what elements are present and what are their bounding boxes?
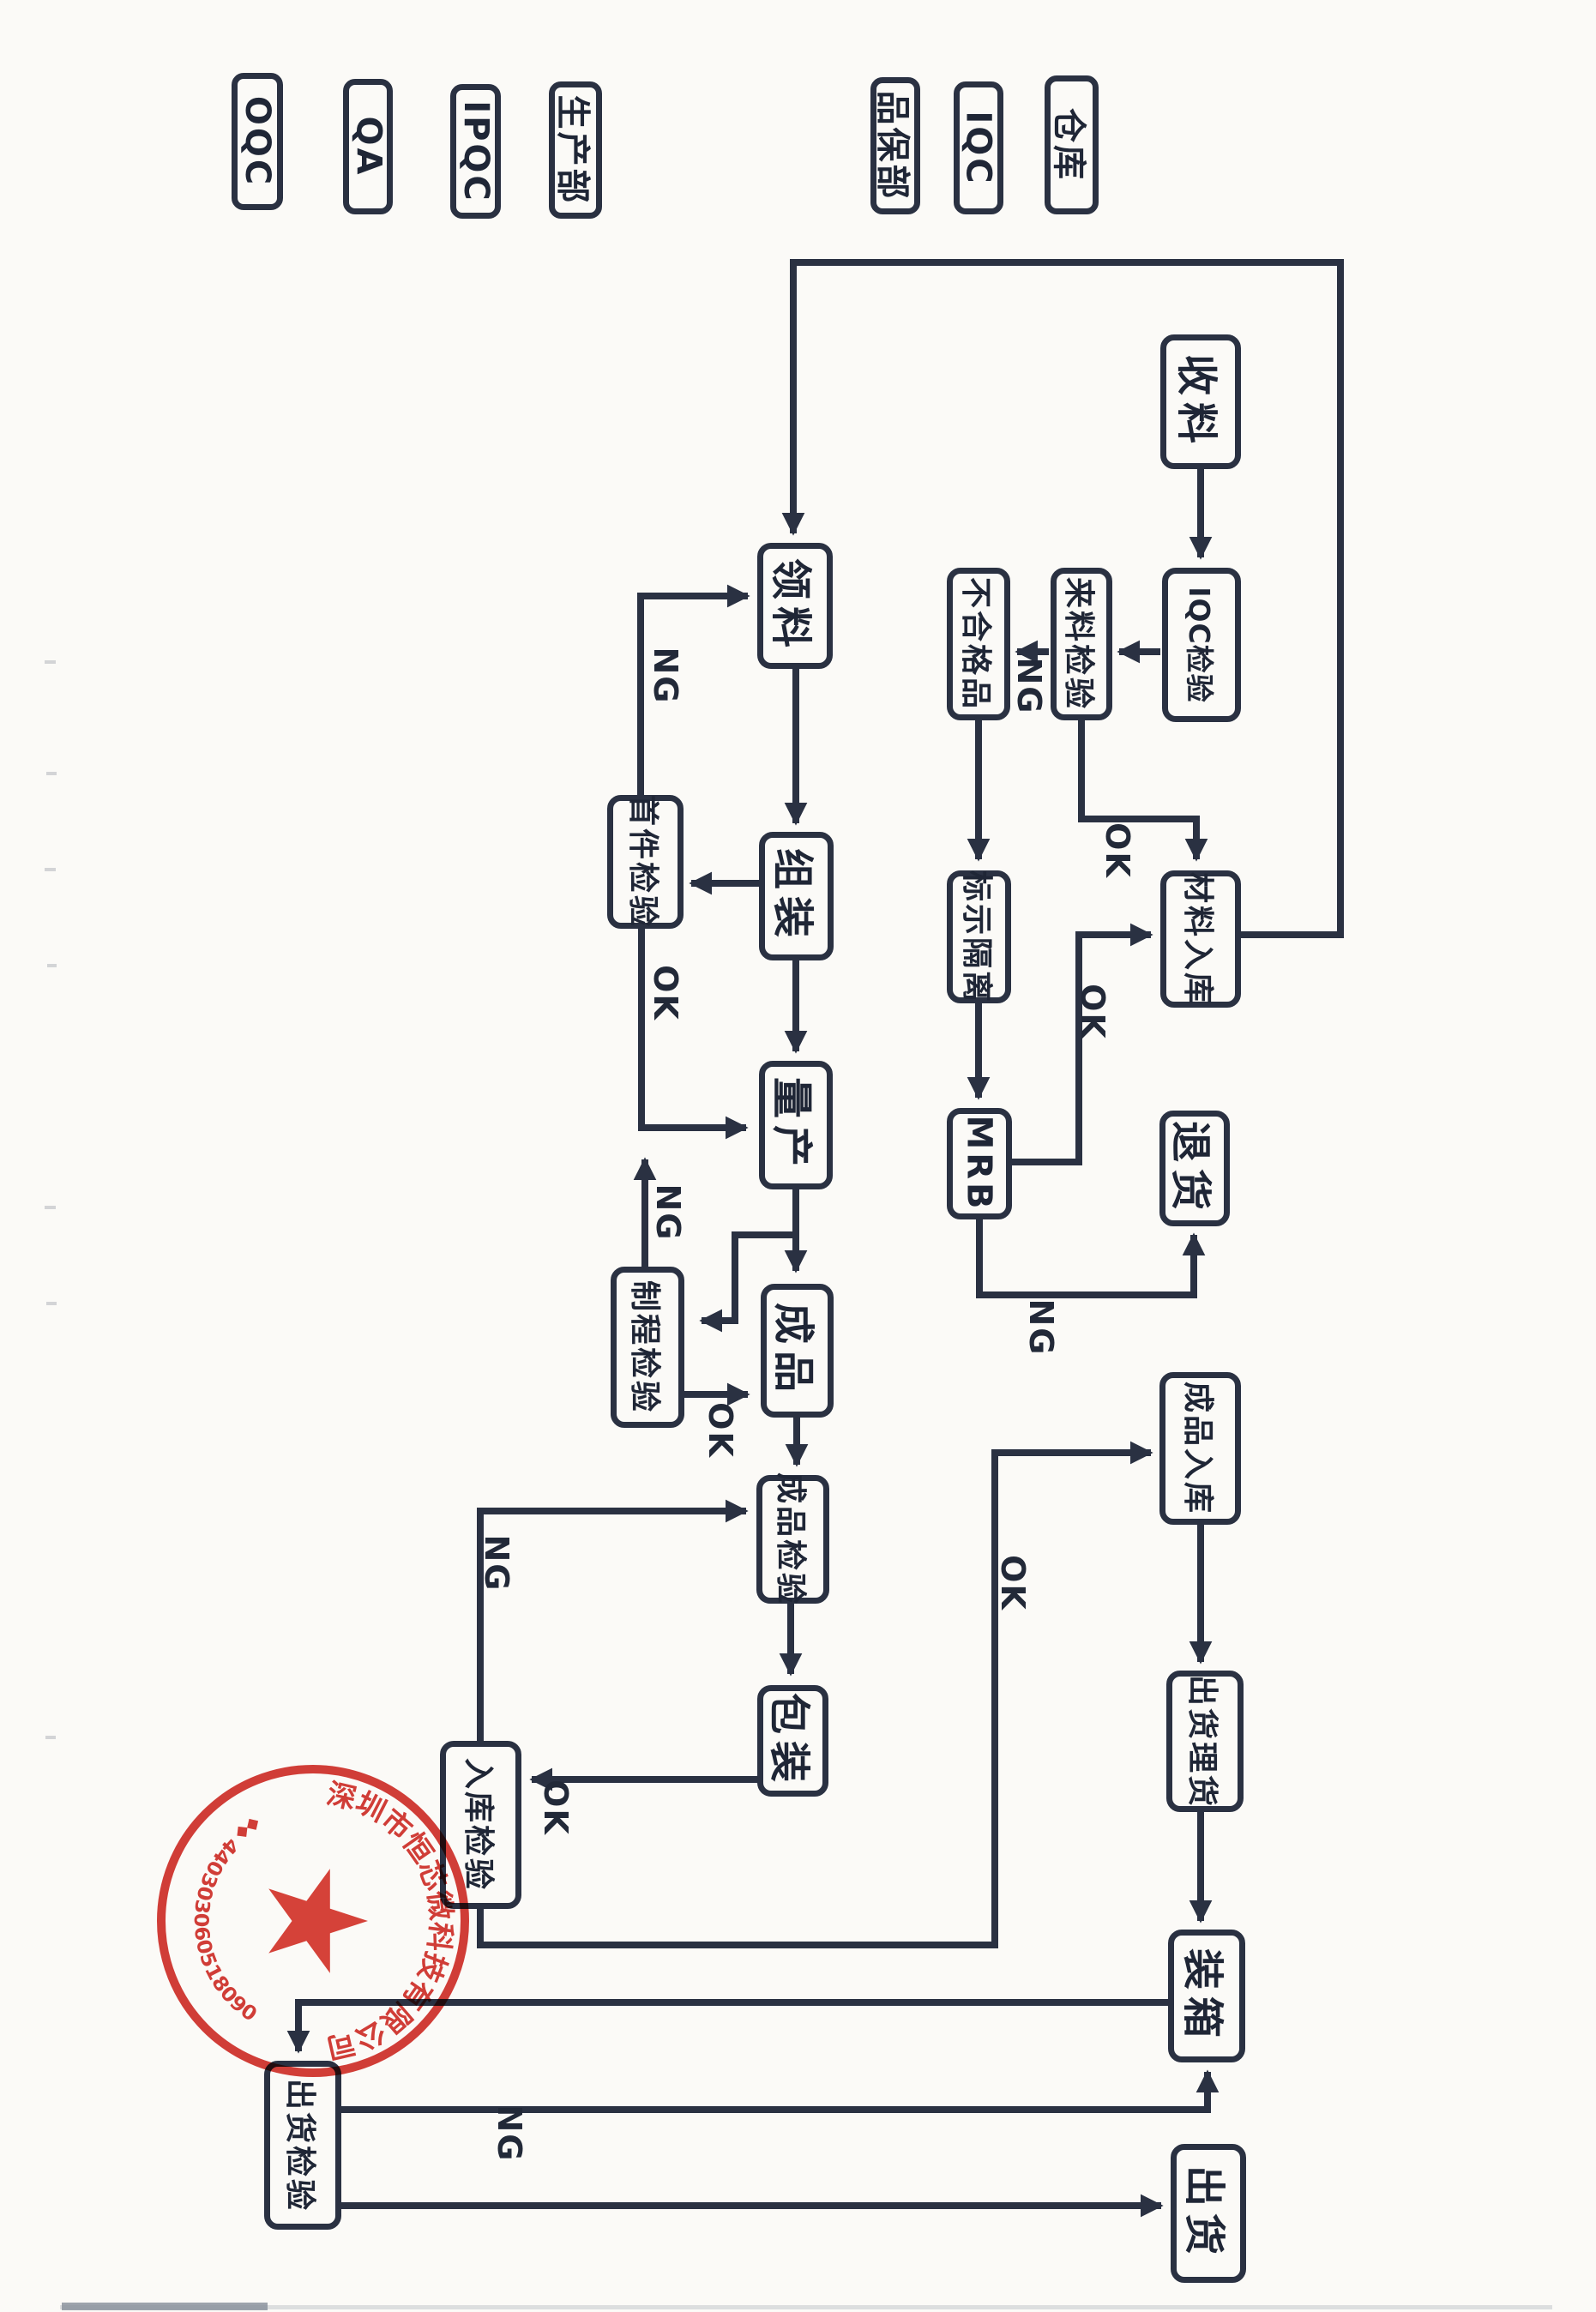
- edge-label-first-article-ok: OK: [647, 965, 684, 1021]
- flow-node-finished-product-label: 成品: [768, 1303, 828, 1399]
- flow-node-assembly: 组装: [759, 832, 834, 960]
- lane-header-iqc: IQC: [954, 81, 1003, 214]
- svg-text:◆◆: ◆◆: [232, 1814, 265, 1845]
- lane-header-ipqc: IPQC: [450, 84, 501, 219]
- flow-node-nonconforming-label: 不合格品: [956, 577, 1001, 711]
- edge-label-incoming-ng: NG: [1010, 658, 1048, 715]
- lane-header-quality: 品保部: [870, 77, 920, 214]
- flow-node-shipping-inspection: 出货检验: [264, 2061, 341, 2230]
- flow-node-first-article-inspection: 首件检验: [607, 795, 684, 929]
- lane-header-quality-label: 品保部: [870, 91, 920, 202]
- flow-node-iqc-inspection: IQC检验: [1162, 568, 1241, 722]
- edge-label-process-ng: NG: [649, 1184, 687, 1242]
- flow-node-storage-inspection-label: 入库检验: [459, 1758, 503, 1892]
- flow-node-return-goods: 退货: [1159, 1111, 1230, 1226]
- lane-header-oqc-label: OQC: [238, 96, 277, 187]
- connector-boxing-to-shipping-inspection: [298, 2002, 1168, 2051]
- star-icon: [268, 1869, 368, 1973]
- flow-node-shipping-label: 出货: [1178, 2165, 1238, 2261]
- lane-header-qa-label: QA: [348, 117, 388, 178]
- flow-node-finished-inspection-label: 成品检验: [771, 1472, 816, 1606]
- lane-header-iqc-label: IQC: [959, 111, 998, 185]
- lane-header-qa: QA: [343, 79, 393, 214]
- flow-node-pick-material: 领料: [757, 543, 833, 669]
- scan-artifact: [45, 1206, 56, 1209]
- flow-node-shipping-inspection-label: 出货检验: [280, 2078, 325, 2212]
- scan-artifact: [45, 868, 56, 871]
- stamp-ring: [161, 1769, 465, 2073]
- flow-node-shipping-prep-label: 出货理货: [1183, 1674, 1227, 1808]
- flow-node-finished-inspection: 成品检验: [756, 1475, 829, 1604]
- svg-text:深圳市恒芯微科技有限公司: 深圳市恒芯微科技有限公司: [323, 1777, 458, 2066]
- connector-first-article-ok-to-mass-production: [641, 929, 746, 1128]
- flow-node-storage-inspection: 入库检验: [440, 1741, 521, 1909]
- edge-label-shipping-inspection-ng: NG: [491, 2105, 528, 2163]
- scan-artifact: [46, 772, 57, 775]
- flow-node-mass-production: 量产: [759, 1061, 833, 1189]
- scan-edge-strip-dark: [62, 2303, 268, 2310]
- lane-header-warehouse: 仓库: [1045, 75, 1099, 214]
- lane-header-oqc: OQC: [232, 73, 283, 210]
- stamp-serial-number: 440303060518090: [190, 1833, 261, 2026]
- flow-node-mark-quarantine: 标示隔离: [947, 870, 1011, 1003]
- flow-node-mrb-label: MRB: [960, 1115, 999, 1212]
- flow-node-incoming-inspection-label: 来料检验: [1059, 577, 1104, 711]
- flow-node-material-storage-label: 材料入库: [1178, 872, 1223, 1006]
- flow-node-assembly-label: 组装: [767, 848, 827, 944]
- flow-node-boxing: 装箱: [1168, 1930, 1245, 2062]
- lane-header-ipqc-label: IPQC: [456, 100, 496, 203]
- flow-node-mass-production-label: 量产: [766, 1077, 826, 1173]
- lane-header-warehouse-label: 仓库: [1047, 108, 1097, 182]
- flow-node-nonconforming: 不合格品: [947, 568, 1010, 720]
- edge-label-first-article-ng: NG: [647, 647, 684, 705]
- connector-shipping-ng-to-boxing: [341, 2072, 1208, 2110]
- edge-label-incoming-ok: OK: [1099, 822, 1136, 879]
- flow-node-mark-quarantine-label: 标示隔离: [957, 870, 1002, 1003]
- scan-artifact: [46, 1302, 57, 1305]
- edge-label-mrb-ng: NG: [1022, 1299, 1060, 1357]
- flow-node-iqc-inspection-label: IQC检验: [1181, 587, 1222, 703]
- stamp-separator: ◆◆: [232, 1814, 265, 1845]
- connector-mrb-ok-to-material-storage: [1012, 935, 1151, 1162]
- flow-node-first-article-inspection-label: 首件检验: [623, 795, 668, 929]
- flow-node-finished-storage: 成品入库: [1159, 1372, 1241, 1525]
- flow-node-packing-label: 包装: [763, 1693, 823, 1789]
- edge-label-packing-ok: OK: [537, 1779, 575, 1836]
- connector-mrb-ng-to-return: [979, 1219, 1194, 1295]
- flow-node-shipping: 出货: [1171, 2144, 1246, 2283]
- flow-node-return-goods-label: 退货: [1165, 1120, 1225, 1216]
- flow-node-process-inspection: 制程检验: [611, 1267, 684, 1428]
- flow-node-incoming-inspection: 来料检验: [1051, 568, 1112, 720]
- flow-node-material-storage: 材料入库: [1160, 870, 1241, 1008]
- scan-edge-strip: [60, 2305, 1552, 2309]
- flow-node-mrb: MRB: [947, 1108, 1012, 1219]
- edge-label-storage-inspection-ok: OK: [994, 1555, 1032, 1611]
- connector-storage-ng-to-finished-inspection: [480, 1511, 746, 1741]
- edge-label-process-ok: OK: [702, 1402, 739, 1459]
- lane-header-production-label: 生产部: [551, 95, 600, 206]
- flow-node-shipping-prep: 出货理货: [1166, 1671, 1244, 1812]
- edge-label-mrb-ok: OK: [1074, 984, 1111, 1040]
- edge-label-storage-inspection-ng: NG: [478, 1535, 515, 1593]
- flow-node-boxing-label: 装箱: [1177, 1948, 1237, 2044]
- flow-node-finished-storage-label: 成品入库: [1178, 1382, 1223, 1515]
- flow-node-pick-material-label: 领料: [765, 557, 825, 653]
- scan-artifact: [45, 660, 56, 664]
- scanned-flowchart-page: OQC QA IPQC 生产部 品保部 IQC 仓库 收料 IQC检验 来料检验…: [0, 0, 1596, 2312]
- lane-header-production: 生产部: [549, 81, 602, 219]
- svg-text:440303060518090: 440303060518090: [190, 1833, 261, 2026]
- scan-artifact: [47, 964, 57, 967]
- flow-node-process-inspection-label: 制程检验: [625, 1280, 670, 1414]
- flow-node-finished-product: 成品: [761, 1284, 834, 1418]
- flow-node-packing: 包装: [757, 1685, 828, 1797]
- stamp-company-name: 深圳市恒芯微科技有限公司: [323, 1777, 458, 2066]
- flow-node-receive-material-label: 收料: [1171, 353, 1231, 449]
- flow-node-receive-material: 收料: [1160, 334, 1241, 469]
- stamp-group: 深圳市恒芯微科技有限公司 ◆◆ 440303060518090: [161, 1769, 465, 2073]
- scan-artifact: [45, 1736, 56, 1739]
